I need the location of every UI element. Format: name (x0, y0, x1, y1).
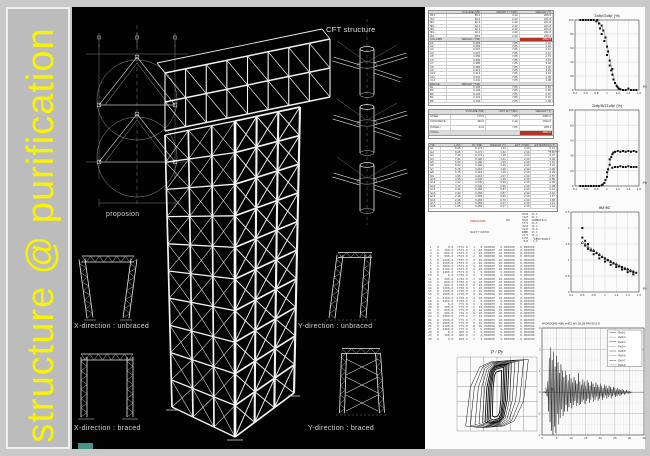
table-cell: WEIGHT (T) (520, 11, 553, 13)
table-cell: WEIGHT (T) (520, 110, 553, 114)
table-cell: 0.431 (447, 76, 482, 78)
table-cell: 92.4 (447, 28, 482, 30)
table-cell: 0.190 (463, 164, 485, 166)
table-cell: 2.40 (508, 178, 532, 180)
table-cell: 0.283 (447, 45, 482, 47)
table-cell (482, 38, 519, 40)
table-cell: 1.25 (484, 164, 508, 166)
svg-text:1.6: 1.6 (637, 91, 642, 95)
table-cell: B3 (429, 93, 447, 95)
table-cell: 2.99 (531, 171, 557, 173)
slide: structure @ purification proposion CFT s… (0, 0, 650, 456)
table-row: TOTAL2602.0 (429, 131, 553, 136)
table-cell: 2.40 (482, 35, 519, 37)
table-cell: 2.41 (520, 52, 553, 54)
svg-text:H60/520KB 40f0 eH02 b/s 18:28: H60/520KB 40f0 eH02 b/s 18:28 PM 00.5.8 (542, 322, 600, 326)
du-note: DU (506, 218, 510, 222)
table-cell: 98.6 (447, 35, 482, 37)
table-cell: 206.9 (520, 14, 553, 16)
table-cell: VOLUME (M3) (447, 11, 482, 13)
table-cell: BRACE (429, 83, 447, 85)
svg-text:R'c: R'c (642, 287, 648, 291)
table-cell: 7.85 (482, 59, 519, 61)
svg-text:80: 80 (570, 123, 574, 127)
table-cell: L (M) (441, 144, 463, 146)
table-cell: C9 (429, 69, 447, 71)
svg-text:1.2: 1.2 (616, 187, 621, 191)
table-cell: 2.40 (508, 199, 532, 201)
table-cell: 0.47 (484, 202, 508, 204)
table-cell: 6FL (429, 21, 447, 23)
svg-text:1.4: 1.4 (626, 293, 631, 297)
node-data-listing: 1 0 0.0 7575.0 1 9.000000 0.000000 0.000… (428, 246, 530, 343)
svg-text:40: 40 (570, 154, 574, 158)
table-cell: 2.40 (508, 192, 532, 194)
table-cell: 7.85 (482, 93, 519, 95)
table-cell: 0.172 (463, 147, 485, 149)
table-cell: 0.190 (463, 158, 485, 160)
table-cell: G12 (429, 185, 441, 187)
table-cell: 0.190 (463, 161, 485, 163)
table-cell: 0.307 (447, 48, 482, 50)
table-cell: 0.124 (447, 96, 482, 98)
table-cell: Y-B (429, 144, 441, 146)
svg-text:80: 80 (570, 32, 574, 36)
svg-text:3: 3 (539, 326, 541, 330)
table-cell: 0.283 (463, 205, 485, 207)
svg-text:1: 1 (568, 258, 570, 262)
table-cell: 0.99 (484, 181, 508, 183)
table-row: B50.1397.851.09 (429, 100, 553, 103)
table-cell: 0.385 (447, 66, 482, 68)
table-cell: 7.85 (482, 100, 519, 102)
table-cell: UNIT W (T/M3) (486, 110, 519, 114)
table-cell: W (T/M) (463, 144, 485, 146)
svg-text:Ref0-7: Ref0-7 (618, 359, 626, 362)
table-cell: 4FL (429, 28, 447, 30)
structure-wireframe-drawing (72, 7, 425, 449)
table-cell: 2.57 (531, 175, 557, 177)
table-cell: C1 (429, 42, 447, 44)
table-cell: 86.2 (447, 14, 482, 16)
table-cell: 0.283 (463, 199, 485, 201)
table-cell: 2.40 (482, 21, 519, 23)
table-cell: 1.19 (484, 178, 508, 180)
table-cell: 2.40 (508, 181, 532, 183)
svg-text:20: 20 (570, 169, 574, 173)
table-cell: 92.4 (447, 31, 482, 33)
svg-text:Ref0-5: Ref0-5 (618, 350, 626, 353)
table-cell: 5FL (429, 25, 447, 27)
table-cell: G10 (429, 178, 441, 180)
table-cell: 3.30 (441, 188, 463, 190)
svg-text:0.4: 0.4 (573, 91, 578, 95)
table-cell: 0.385 (447, 62, 482, 64)
svg-text:2: 2 (568, 226, 570, 230)
table-cell: 2.40 (508, 168, 532, 170)
table-cell: 0.83 (520, 89, 553, 91)
table-cell: 2.40 (508, 158, 532, 160)
svg-text:1.4: 1.4 (626, 187, 631, 191)
table-cell: (STEEL) (429, 126, 451, 130)
table-cell: 2602.0 (520, 131, 553, 135)
table-cell: 1.09 (520, 100, 553, 102)
table-cell: 0.265 (463, 188, 485, 190)
label-y-unbraced: Y-direction : unbraced (298, 323, 372, 330)
svg-text:0.6: 0.6 (584, 91, 589, 95)
table-cell: VOLUME (M3) (451, 110, 486, 114)
table-cell: 2.48 (441, 195, 463, 197)
svg-text:60: 60 (570, 139, 574, 143)
table-cell: 2.40 (508, 147, 532, 149)
table-cell: 0.70 (484, 199, 508, 201)
table-cell: 4.95 (441, 175, 463, 177)
table-cell: 92.4 (447, 18, 482, 20)
table-cell: G17 (429, 202, 441, 204)
table-cell: 2.40 (508, 171, 532, 173)
table-cell: G4 (429, 158, 441, 160)
table-cell: 221.8 (520, 28, 553, 30)
label-cft-structure: CFT structure (326, 25, 376, 34)
table-cell: G15 (429, 195, 441, 197)
table-cell: 5.78 (441, 171, 463, 173)
table-cell: 3FL (429, 31, 447, 33)
table-cell: 2.40 (508, 195, 532, 197)
table-cell: EXT (T/M3) (508, 144, 532, 146)
table-cell: 2.40 (508, 151, 532, 153)
table-cell: STEEL (429, 115, 451, 119)
table-cell: 221.8 (520, 21, 553, 23)
svg-text:0.4: 0.4 (569, 293, 574, 297)
table-cell: 2.99 (531, 168, 557, 170)
table-cell: 0.216 (463, 171, 485, 173)
table-cell: 1.65 (441, 202, 463, 204)
svg-text:0.4: 0.4 (573, 187, 578, 191)
chart-rotation-scatter: 0.40.60.811.21.41.600.511.522.5θM'/θC'R'… (558, 203, 648, 303)
table-cell: 7.85 (482, 69, 519, 71)
table-cell: 4.13 (441, 185, 463, 187)
table-cell: 3.39 (531, 158, 557, 160)
table-cell: 221.8 (520, 25, 553, 27)
table-cell: G13 (429, 188, 441, 190)
table-cell: 1.42 (484, 147, 508, 149)
table-cell: C4 (429, 52, 447, 54)
svg-text:1: 1 (606, 91, 608, 95)
table-cell (486, 131, 519, 135)
svg-text:-1: -1 (538, 412, 541, 416)
table-cell: 1.42 (484, 151, 508, 153)
table-cell: G9 (429, 175, 441, 177)
label-proposion: proposion (106, 211, 139, 218)
table-cell: B4 (429, 96, 447, 98)
table-cell: 2.40 (508, 154, 532, 156)
table-cell: DENSITY (T/M3) (482, 11, 519, 13)
svg-text:1.4: 1.4 (626, 91, 631, 95)
svg-text:0: 0 (539, 390, 541, 394)
svg-text:1.5: 1.5 (565, 242, 570, 246)
table-cell: 7.85 (482, 96, 519, 98)
table-cell: 0.412 (447, 69, 482, 71)
table-cell: 7.85 (482, 48, 519, 50)
table-cell: 1.25 (484, 161, 508, 163)
table-cell: C2 (429, 45, 447, 47)
table-cell: 0.283 (463, 202, 485, 204)
safety-ratio-label: SAFTY RATIO (470, 230, 489, 234)
svg-text:1: 1 (539, 369, 541, 373)
table-cell: 8.25 (441, 151, 463, 153)
table-cell: 2.40 (508, 164, 532, 166)
table-cell: 7.43 (441, 158, 463, 160)
table-cell: C3 (429, 48, 447, 50)
table-cell: 236.6 (520, 35, 553, 37)
table-cell (429, 11, 447, 13)
table-cell: 2.40 (508, 188, 532, 190)
svg-text:2: 2 (539, 347, 541, 351)
svg-text:25: 25 (613, 436, 617, 440)
svg-text:1: 1 (606, 187, 608, 191)
svg-text:1.2: 1.2 (614, 293, 619, 297)
table-cell: 2.40 (486, 120, 519, 124)
table-cell: 4.95 (441, 178, 463, 180)
table-cell: 7.85 (482, 86, 519, 88)
table-cell: 92.4 (447, 21, 482, 23)
label-y-braced: Y-direction : braced (308, 425, 374, 432)
table-cell: G18 (429, 205, 441, 207)
svg-text:0.8: 0.8 (592, 293, 597, 297)
svg-text:0.8: 0.8 (594, 187, 599, 191)
svg-text:1: 1 (604, 293, 606, 297)
table-cell: 1.65 (441, 205, 463, 207)
table-cell: 8.25 (441, 147, 463, 149)
table-cell: 221.8 (520, 18, 553, 20)
table-cell: RFL (429, 14, 447, 16)
table-cell: 6.60 (441, 164, 463, 166)
table-cell: 221.8 (520, 31, 553, 33)
table-cell: 3.38 (520, 76, 553, 78)
table-cell: 2.40 (482, 25, 519, 27)
table-cell: 0.265 (463, 192, 485, 194)
table-cell: 1381.6 (520, 115, 553, 119)
svg-text:Ref0-3: Ref0-3 (618, 341, 626, 344)
table-cell: 188.4 (520, 126, 553, 130)
table-cell: G11 (429, 181, 441, 183)
table-cell: 7.85 (482, 52, 519, 54)
table-cell: 0.240 (463, 178, 485, 180)
chart-beam-column-ratio: 0.40.60.811.21.41.6020406080100Σbθp'/Σcθ… (562, 11, 648, 101)
table-cell: 2.10 (531, 192, 557, 194)
table-cell: 3.02 (520, 66, 553, 68)
table-cell: 92.4 (447, 25, 482, 27)
table-row: G181.650.2830.472.401.12 (429, 205, 557, 208)
table-cell: 7.85 (482, 42, 519, 44)
table-cell: 430.0 (451, 120, 486, 124)
quantity-table: VOLUME (M3)DENSITY (T/M3)WEIGHT (T)RFL86… (428, 10, 554, 106)
beam-table: Y-BL (M)W (T/M)WEIGHT (T)EXT (T/M3)EXTEN… (428, 143, 558, 212)
svg-text:30: 30 (628, 436, 632, 440)
svg-text:40: 40 (570, 60, 574, 64)
table-cell: 2.40 (482, 28, 519, 30)
svg-text:0.5: 0.5 (565, 274, 570, 278)
table-cell: 2.38 (531, 181, 557, 183)
table-cell: C10 (429, 72, 447, 74)
svg-text:60: 60 (570, 46, 574, 50)
table-cell: TOTAL (429, 131, 451, 135)
svg-text:1.2: 1.2 (616, 91, 621, 95)
table-cell: 3.23 (520, 69, 553, 71)
table-cell: 7.43 (441, 154, 463, 156)
svg-text:0.8: 0.8 (594, 91, 599, 95)
table-cell: 0.87 (484, 192, 508, 194)
table-cell: 3.23 (520, 72, 553, 74)
table-cell: 2.40 (508, 202, 532, 204)
table-cell: G6 (429, 164, 441, 166)
svg-text:Ref0-4: Ref0-4 (618, 345, 626, 348)
table-cell: 3.30 (441, 192, 463, 194)
table-cell: 7.85 (482, 55, 519, 57)
table-cell: 2.40 (508, 185, 532, 187)
table-cell: 2.85 (531, 178, 557, 180)
svg-text:0: 0 (541, 436, 543, 440)
table-cell: G16 (429, 199, 441, 201)
svg-text:R'c: R'c (642, 85, 648, 89)
table-cell: G1 (429, 147, 441, 149)
table-cell: 2.40 (482, 31, 519, 33)
table-cell: 3.07 (531, 154, 557, 156)
table-cell: 0.307 (447, 52, 482, 54)
table-cell: C12 (429, 79, 447, 81)
table-cell: 2.10 (531, 188, 557, 190)
label-x-braced: X-direction : braced (74, 425, 141, 432)
table-cell: 0.47 (484, 205, 508, 207)
svg-text:10: 10 (570, 436, 574, 440)
table-cell: 0.265 (463, 195, 485, 197)
table-cell: B5 (429, 100, 447, 102)
table-cell: 6.60 (441, 161, 463, 163)
table-cell: G3 (429, 154, 441, 156)
table-cell: 2.79 (520, 55, 553, 57)
table-cell: 1552.5 (520, 38, 553, 40)
svg-text:15: 15 (584, 436, 588, 440)
table-cell: 2.22 (520, 45, 553, 47)
svg-text:-2: -2 (538, 433, 541, 437)
prescrib-note: PRESCRIB (470, 219, 485, 223)
table-cell: 0.99 (484, 185, 508, 187)
table-cell: 0.124 (447, 93, 482, 95)
table-cell: G14 (429, 192, 441, 194)
table-cell: 0.97 (520, 96, 553, 98)
table-cell: 7.85 (482, 66, 519, 68)
table-cell: WEIGHT (T/M) (447, 83, 482, 85)
table-cell: 5.78 (441, 168, 463, 170)
table-cell: 7.85 (486, 126, 519, 130)
table-cell: 0.66 (484, 195, 508, 197)
table-cell: 2.48 (441, 199, 463, 201)
table-cell: 176.0 (451, 115, 486, 119)
table-cell: 0.412 (447, 72, 482, 74)
table-cell (429, 110, 451, 114)
table-cell: 0.216 (463, 175, 485, 177)
table-cell: 2.41 (520, 48, 553, 50)
chart-plastic-hinge-ratio: 0.40.60.811.21.41.6020406080100Σbθp'B/ΣΣ… (562, 101, 648, 197)
table-cell: 7.85 (482, 76, 519, 78)
table-cell: 2.79 (520, 59, 553, 61)
table-cell: 2FL (429, 35, 447, 37)
label-x-unbraced: X-direction : unbraced (74, 323, 149, 330)
table-cell (482, 83, 519, 85)
svg-text:P / Py: P / Py (490, 351, 504, 356)
table-cell: G7 (429, 168, 441, 170)
safety-ratio-value: 1.5 (522, 230, 526, 234)
table-cell: 0.240 (463, 181, 485, 183)
table-cell: 0.431 (447, 79, 482, 81)
table-cell: C8 (429, 66, 447, 68)
svg-text:2.5: 2.5 (565, 210, 570, 214)
table-cell (451, 131, 486, 135)
table-cell: 1.12 (531, 205, 557, 207)
svg-text:Σbθp'/Σcθp' (%): Σbθp'/Σcθp' (%) (594, 14, 619, 18)
table-cell: 7.85 (482, 45, 519, 47)
table-cell: 7.85 (482, 72, 519, 74)
svg-text:1.6: 1.6 (637, 293, 642, 297)
table-cell: 1.25 (484, 168, 508, 170)
table-cell: 0.356 (447, 55, 482, 57)
table-cell: 3.02 (520, 62, 553, 64)
table-cell: 2.40 (508, 205, 532, 207)
kn-axis-note: E0.R (kN) (548, 150, 560, 153)
table-cell: 0.216 (463, 168, 485, 170)
table-cell: 0.106 (447, 89, 482, 91)
svg-text:0.6: 0.6 (584, 187, 589, 191)
table-cell: WEIGHT (T) (484, 144, 508, 146)
table-cell: 1.41 (484, 158, 508, 160)
table-cell: 1.28 (484, 154, 508, 156)
svg-text:100: 100 (568, 18, 573, 22)
table-cell: COLUMN (429, 38, 447, 40)
table-cell: CONCRETE (429, 120, 451, 124)
svg-text:5: 5 (556, 436, 558, 440)
teal-marker (78, 443, 93, 449)
table-cell: 4.13 (441, 181, 463, 183)
svg-text:Ref0-2: Ref0-2 (618, 336, 626, 339)
table-cell: G8 (429, 171, 441, 173)
svg-text:R'p: R'p (642, 181, 648, 185)
table-cell: 2.40 (508, 175, 532, 177)
table-cell: 0.97 (520, 93, 553, 95)
table-cell: 24.0 (451, 126, 486, 130)
table-cell: B1 (429, 86, 447, 88)
table-cell: 7.85 (486, 115, 519, 119)
summary-table: VOLUME (M3)UNIT W (T/M3)WEIGHT (T)STEEL1… (428, 109, 554, 139)
svg-text:Ref0-6: Ref0-6 (618, 355, 626, 358)
table-cell: 0.139 (447, 100, 482, 102)
table-cell: 1032.0 (520, 120, 553, 124)
table-cell: 1.12 (531, 202, 557, 204)
table-cell: 1.57 (531, 195, 557, 197)
table-cell: C7 (429, 62, 447, 64)
svg-text:0.6: 0.6 (580, 293, 585, 297)
svg-text:1.6: 1.6 (637, 187, 642, 191)
table-cell: 1.25 (484, 171, 508, 173)
page-title: structure @ purification (12, 16, 70, 454)
table-cell: 3.38 (520, 79, 553, 81)
table-cell: 3.01 (531, 164, 557, 166)
table-cell: 0.283 (447, 42, 482, 44)
table-cell: C11 (429, 76, 447, 78)
table-cell: 7.85 (482, 62, 519, 64)
table-cell: G2 (429, 151, 441, 153)
table-cell: WEIGHT (T/M) (447, 38, 482, 40)
table-cell: 0.83 (520, 86, 553, 88)
